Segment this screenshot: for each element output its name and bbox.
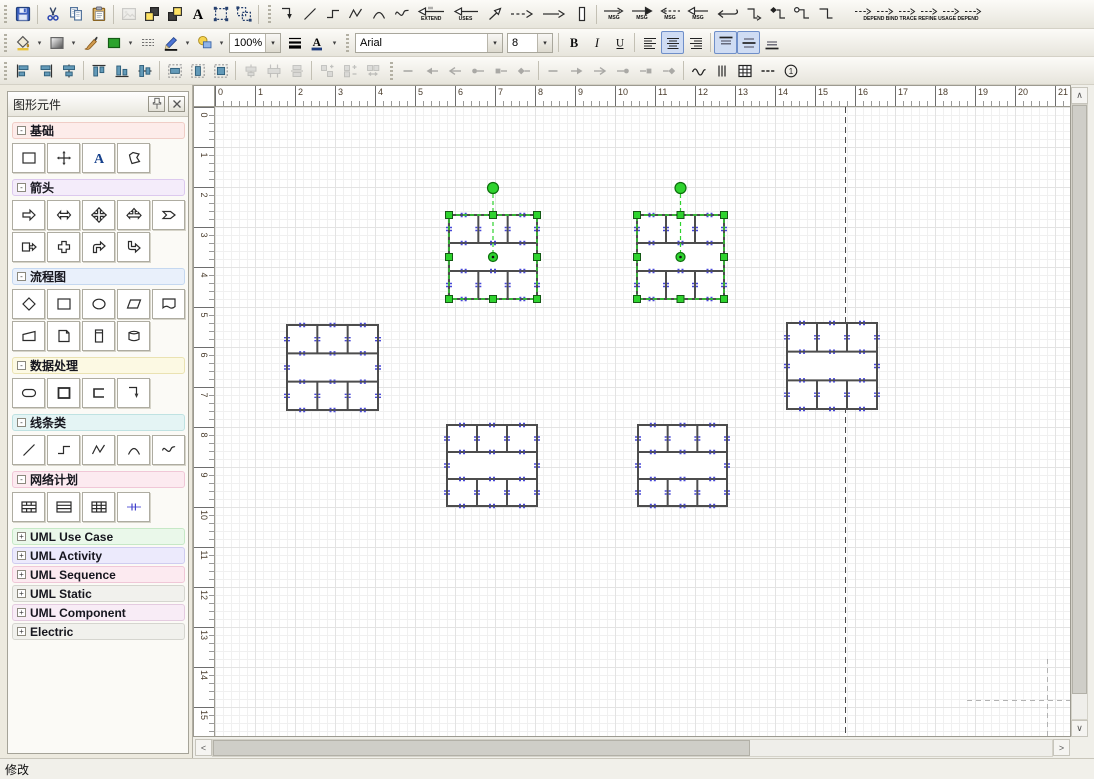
hatch-icon (140, 35, 156, 51)
palette-section-箭头[interactable]: -箭头 (12, 179, 185, 196)
drawing-canvas[interactable] (215, 107, 1071, 737)
palette-section-基础[interactable]: -基础 (12, 122, 185, 139)
chevron-down-icon[interactable]: ▾ (537, 34, 552, 52)
shape-item-move[interactable] (47, 143, 80, 173)
line-color-button[interactable] (159, 31, 182, 54)
toolbar-separator (710, 33, 711, 52)
h-ruler-number: 3 (338, 87, 343, 97)
h-ruler-number: 20 (1018, 87, 1028, 97)
s-arrow-tri-icon (126, 207, 142, 223)
s-chevron-icon (161, 207, 177, 223)
copy-button[interactable] (64, 3, 87, 26)
h-ruler-number: 7 (498, 87, 503, 97)
distribute-middle-button[interactable] (285, 59, 308, 82)
uml-relations-button[interactable]: DEPEND BIND TRACE REFINE USAGE DEPEND (838, 3, 1004, 26)
v-ruler-number: 6 (199, 348, 209, 362)
toolbar-grip-handle[interactable] (346, 34, 349, 52)
toolbar-grip-handle[interactable] (268, 5, 271, 23)
toolbar-grip-handle[interactable] (4, 5, 7, 23)
palette-section-uml-activity[interactable]: +UML Activity (12, 547, 185, 564)
s-wall-icon (21, 499, 37, 515)
h-ruler-number: 9 (578, 87, 583, 97)
same-h-icon (190, 63, 206, 79)
shape-item-rect[interactable] (47, 289, 80, 319)
close-palette-button[interactable] (168, 96, 185, 112)
cap-square-r-icon (638, 63, 654, 79)
fill-color-button[interactable] (11, 31, 34, 54)
cap-square-l-icon (493, 63, 509, 79)
dashed-arrow-icon (509, 6, 535, 22)
shape-fill-button[interactable] (102, 31, 125, 54)
z-diamond-icon (769, 6, 787, 22)
shape-item-hlines[interactable] (47, 492, 80, 522)
toolbar-separator (558, 33, 559, 52)
shape-item-arrow-tri[interactable] (117, 200, 150, 230)
palette-section-流程图[interactable]: -流程图 (12, 268, 185, 285)
palette-title: 图形元件 (13, 96, 145, 113)
line-wave-icon (691, 63, 707, 79)
shape-item-trap[interactable] (12, 321, 45, 351)
collapse-icon[interactable]: - (17, 418, 26, 427)
pen-icon (163, 35, 179, 51)
line-dash-icon (760, 63, 776, 79)
shape-item-arrow-lr[interactable] (47, 200, 80, 230)
cap-none-icon (546, 63, 562, 79)
shape-item-step[interactable] (47, 435, 80, 465)
line-end-arrow-button[interactable] (565, 59, 588, 82)
toolbar-group: A (0, 0, 264, 28)
gradient-fill-button[interactable] (45, 31, 68, 54)
save-button[interactable] (11, 3, 34, 26)
shape-item-ticks[interactable] (117, 492, 150, 522)
toolbar-grip-handle[interactable] (4, 62, 7, 80)
toolbar-grip-handle[interactable] (4, 34, 7, 52)
dashed-arrow-button[interactable] (506, 3, 538, 26)
align-left-button[interactable] (638, 31, 661, 54)
shape-item-plus-arrow[interactable] (47, 232, 80, 262)
italic-button[interactable]: I (585, 31, 608, 54)
shape-item-cyl[interactable] (117, 321, 150, 351)
font-color-icon: A (310, 35, 326, 51)
svg-text:1: 1 (788, 67, 793, 76)
lifeline-button[interactable] (570, 3, 593, 26)
toolbar-separator (235, 61, 236, 80)
font-color-dropdown[interactable]: ▾ (329, 31, 340, 54)
scroll-up-button[interactable]: ∧ (1071, 87, 1088, 104)
cut-button[interactable] (41, 3, 64, 26)
pin-button[interactable] (148, 96, 165, 112)
line-end-square-button[interactable] (634, 59, 657, 82)
cap-none-icon (401, 63, 417, 79)
horizontal-scroll-track[interactable] (212, 739, 1053, 757)
palette-section-线条类[interactable]: -线条类 (12, 414, 185, 431)
collapse-icon[interactable]: - (17, 183, 26, 192)
selection-handle[interactable] (534, 254, 541, 261)
align-objects-right-button[interactable] (34, 59, 57, 82)
uml-relations-icon (854, 6, 988, 17)
grid-icon-icon (737, 63, 753, 79)
same-size-button[interactable] (209, 59, 232, 82)
h-ruler-number: 18 (938, 87, 948, 97)
expand-icon[interactable]: + (17, 627, 26, 636)
line-begin-circle-button[interactable] (466, 59, 489, 82)
shadow-style-button[interactable] (193, 31, 216, 54)
format-brush-button[interactable] (79, 31, 102, 54)
space-vertical-add-button[interactable] (338, 59, 361, 82)
collapse-icon[interactable]: - (17, 475, 26, 484)
show-grid-button[interactable] (733, 59, 756, 82)
dist-v2-icon (342, 63, 358, 79)
shape-item-rect2[interactable] (47, 378, 80, 408)
z-connector-diamond-button[interactable] (766, 3, 790, 26)
chevron-down-icon[interactable]: ▾ (487, 34, 502, 52)
s-hlines-icon (56, 499, 72, 515)
s-wave-icon (161, 442, 177, 458)
distribute-horizontal-button[interactable] (262, 59, 285, 82)
font-size-combobox[interactable]: 8▾ (507, 33, 553, 53)
shape-item-corner-dn[interactable] (117, 232, 150, 262)
numbering-button[interactable]: 1 (779, 59, 802, 82)
lifeline-icon (576, 6, 588, 22)
gradient-fill-dropdown[interactable]: ▾ (68, 31, 79, 54)
shape-item-elbow[interactable] (117, 378, 150, 408)
arc-tool-button[interactable] (367, 3, 390, 26)
group-button[interactable] (209, 3, 232, 26)
align-objects-top-button[interactable] (87, 59, 110, 82)
scroll-down-button[interactable]: ∨ (1071, 720, 1088, 737)
line-style-parallel-button[interactable] (710, 59, 733, 82)
shape-fill-dropdown[interactable]: ▾ (125, 31, 136, 54)
section-items (11, 198, 186, 266)
shape-item-arrow-cross[interactable] (82, 200, 115, 230)
space-vertical-button[interactable] (315, 59, 338, 82)
uml-relation-labels: DEPEND BIND TRACE REFINE USAGE DEPEND (863, 17, 978, 21)
selected-diagram-shape[interactable] (634, 183, 728, 303)
selection-handle[interactable] (634, 296, 641, 303)
step-connector-button[interactable] (321, 3, 344, 26)
message-arrow-dashed-button[interactable]: MSG (656, 3, 684, 26)
shape-item-doc[interactable] (152, 289, 185, 319)
shape-item-corner-up[interactable] (82, 232, 115, 262)
s-rect-arrow-icon (21, 239, 37, 255)
h-ruler-number: 11 (658, 87, 667, 97)
line-begin-open-arrow-button[interactable] (443, 59, 466, 82)
selection-handle[interactable] (534, 296, 541, 303)
vertical-scroll-thumb[interactable] (1072, 105, 1087, 694)
palette-section-uml-static[interactable]: +UML Static (12, 585, 185, 602)
insert-image-button[interactable] (117, 3, 140, 26)
dist-v3-icon (365, 63, 381, 79)
line-end-open-arrow-button[interactable] (588, 59, 611, 82)
align-center-icon (665, 35, 681, 51)
valign-top-button[interactable] (714, 31, 737, 54)
align-right-button[interactable] (684, 31, 707, 54)
scroll-right-button[interactable]: > (1053, 739, 1070, 756)
horizontal-scrollbar[interactable]: < > (195, 739, 1070, 757)
expand-icon[interactable]: + (17, 589, 26, 598)
line-color-dropdown[interactable]: ▾ (182, 31, 193, 54)
expand-icon[interactable]: + (17, 532, 26, 541)
selection-handle[interactable] (721, 296, 728, 303)
valign-bottom-button[interactable] (760, 31, 783, 54)
palette-section-electric[interactable]: +Electric (12, 623, 185, 640)
s-corner-up-icon (91, 239, 107, 255)
align-center-button[interactable] (661, 31, 684, 54)
section-label: 箭头 (30, 179, 54, 196)
cap-diamond-l-icon (516, 63, 532, 79)
z-connector-arrow-button[interactable] (742, 3, 766, 26)
same-width-button[interactable] (163, 59, 186, 82)
copy-icon (68, 6, 84, 22)
collapse-icon[interactable]: - (17, 361, 26, 370)
fill-color-dropdown[interactable]: ▾ (34, 31, 45, 54)
shape-item-rect-arrow[interactable] (12, 232, 45, 262)
ungroup-button[interactable] (232, 3, 255, 26)
selection-handle[interactable] (677, 212, 684, 219)
v-ruler-number: 11 (199, 548, 209, 562)
v-ruler-number: 9 (199, 468, 209, 482)
dist-v-icon (319, 63, 335, 79)
message-arrow-open-label: MSG (608, 16, 619, 20)
line-begin-square-button[interactable] (489, 59, 512, 82)
cut-icon (45, 6, 61, 22)
gradient-rect-icon (49, 35, 65, 51)
uses-relation-label: USES (459, 17, 473, 21)
selected-diagram-shape[interactable] (446, 183, 541, 303)
valign-middle-button[interactable] (737, 31, 760, 54)
rotation-handle[interactable] (488, 183, 499, 194)
send-to-back-button[interactable] (163, 3, 186, 26)
shape-item-rect[interactable] (12, 143, 45, 173)
shape-item-stadium[interactable] (12, 378, 45, 408)
cap-circle-l-icon (470, 63, 486, 79)
v-ruler-number: 0 (199, 108, 209, 122)
align-objects-center-button[interactable] (57, 59, 80, 82)
collapse-icon[interactable]: - (17, 126, 26, 135)
h-ruler-number: 16 (858, 87, 868, 97)
distribute-center-button[interactable] (239, 59, 262, 82)
text-tool-button[interactable]: A (186, 3, 209, 26)
section-items (11, 376, 186, 412)
s-card-icon (91, 328, 107, 344)
selection-handle[interactable] (446, 296, 453, 303)
s-rect-icon (56, 296, 72, 312)
shape-item-zigzag[interactable] (82, 435, 115, 465)
s-para-icon (126, 296, 142, 312)
hatch-style-button[interactable] (136, 31, 159, 54)
chevron-down-icon[interactable]: ▾ (265, 34, 280, 52)
h-ruler-number: 8 (538, 87, 543, 97)
palette-section-uml-use-case[interactable]: +UML Use Case (12, 528, 185, 545)
shape-item-arc[interactable] (117, 435, 150, 465)
shape-item-chevron[interactable] (152, 200, 185, 230)
solid-arrow-button[interactable] (538, 3, 570, 26)
scroll-left-button[interactable]: < (195, 739, 212, 756)
space-vertical-remove-button[interactable] (361, 59, 384, 82)
align-right-icon (688, 35, 704, 51)
zigzag-tool-button[interactable] (344, 3, 367, 26)
h-ruler-number: 0 (218, 87, 223, 97)
expand-icon[interactable]: + (17, 608, 26, 617)
line-width-button[interactable] (283, 31, 306, 54)
s-rect-icon (21, 150, 37, 166)
svg-text:A: A (192, 7, 203, 22)
toolbar-group: Arial▾8▾BIU (342, 29, 785, 56)
shape-item-ellipse[interactable] (82, 289, 115, 319)
expand-icon[interactable]: + (17, 551, 26, 560)
s-arrow-lr-icon (56, 207, 72, 223)
shape-item-bracket[interactable] (82, 378, 115, 408)
palette-section-uml-sequence[interactable]: +UML Sequence (12, 566, 185, 583)
selection-handle[interactable] (490, 212, 497, 219)
line-begin-diamond-button[interactable] (512, 59, 535, 82)
diagram-shape[interactable] (444, 424, 540, 508)
diagonal-arrow-button[interactable] (483, 3, 506, 26)
s-text-icon: A (91, 150, 107, 166)
underline-button[interactable]: U (608, 31, 631, 54)
zigzag-tool-icon (348, 6, 364, 22)
toolbar-separator (37, 5, 38, 24)
selection-handle[interactable] (721, 254, 728, 261)
font-family-combobox[interactable]: Arial▾ (355, 33, 503, 53)
toolbar-grip-handle[interactable] (390, 62, 393, 80)
diagram-shape[interactable] (284, 324, 381, 412)
oac-icon (61, 63, 77, 79)
zoom-level-value: 100% (230, 37, 265, 49)
shape-item-text[interactable]: A (82, 143, 115, 173)
bring-to-front-button[interactable] (140, 3, 163, 26)
line-style-dash-button[interactable] (756, 59, 779, 82)
line-end-circle-button[interactable] (611, 59, 634, 82)
h-ruler-number: 10 (618, 87, 628, 97)
v-ruler-number: 12 (199, 588, 209, 602)
expand-icon[interactable]: + (17, 570, 26, 579)
uses-relation-button[interactable]: USES (449, 3, 483, 26)
section-label: UML Sequence (30, 568, 116, 582)
pin-icon (150, 97, 164, 111)
section-label: UML Static (30, 587, 92, 601)
vertical-ruler: 0123456789101112131415 (193, 107, 215, 737)
rotation-handle[interactable] (675, 183, 686, 194)
line-parallel-icon (714, 63, 730, 79)
shape-item-page[interactable] (47, 321, 80, 351)
circled-one-icon: 1 (783, 63, 799, 79)
v-ruler-number: 14 (199, 668, 209, 682)
horizontal-scroll-thumb[interactable] (213, 740, 750, 756)
z-circle-icon (793, 6, 811, 22)
paste-button[interactable] (87, 3, 110, 26)
shape-item-wave[interactable] (152, 435, 185, 465)
message-arrow-open-button[interactable]: MSG (600, 3, 628, 26)
shape-item-line[interactable] (12, 435, 45, 465)
palette-section-uml-component[interactable]: +UML Component (12, 604, 185, 621)
cap-diamond-r-icon (661, 63, 677, 79)
bold-button[interactable]: B (562, 31, 585, 54)
diagram-shape[interactable] (635, 424, 730, 508)
s-trap-icon (21, 328, 37, 344)
line-tool-icon (302, 6, 318, 22)
collapse-icon[interactable]: - (17, 272, 26, 281)
palette-section-网络计划[interactable]: -网络计划 (12, 471, 185, 488)
align-objects-bottom-button[interactable] (110, 59, 133, 82)
svg-text:I: I (593, 36, 599, 50)
s-page-icon (56, 328, 72, 344)
palette-title-bar: 图形元件 (8, 92, 188, 117)
wave-tool-button[interactable] (390, 3, 413, 26)
vertical-scrollbar[interactable]: ∧ ∨ (1071, 87, 1088, 737)
selection-handle[interactable] (534, 212, 541, 219)
selection-handle[interactable] (490, 296, 497, 303)
shape-item-diamond[interactable] (12, 289, 45, 319)
cap-arrow-l-icon (424, 63, 440, 79)
shape-item-card[interactable] (82, 321, 115, 351)
align-left-icon (642, 35, 658, 51)
line-tool-button[interactable] (298, 3, 321, 26)
v-ruler-number: 15 (199, 708, 209, 722)
z-connector-circle-button[interactable] (790, 3, 814, 26)
shape-item-para[interactable] (117, 289, 150, 319)
oal-icon (15, 63, 31, 79)
palette-section-数据处理[interactable]: -数据处理 (12, 357, 185, 374)
h-ruler-number: 14 (778, 87, 788, 97)
section-label: UML Activity (30, 549, 102, 563)
selection-handle[interactable] (677, 296, 684, 303)
line-begin-none-button[interactable] (397, 59, 420, 82)
line-begin-arrow-button[interactable] (420, 59, 443, 82)
selection-handle[interactable] (634, 254, 641, 261)
message-arrow-left-button[interactable]: MSG (684, 3, 712, 26)
valign-middle-icon (741, 35, 757, 51)
extend-relation-button[interactable]: EXTEND (413, 3, 449, 26)
h-ruler-number: 6 (458, 87, 463, 97)
toolbar-group: EXTENDUSESMSGMSGMSGMSGDEPEND BIND TRACE … (264, 0, 1006, 28)
shape-item-polygon[interactable] (117, 143, 150, 173)
s-step-icon (56, 442, 72, 458)
bubble-icon (197, 35, 213, 51)
align-objects-left-button[interactable] (11, 59, 34, 82)
selection-handle[interactable] (446, 254, 453, 261)
line-style-wave-button[interactable] (687, 59, 710, 82)
selection-handle[interactable] (446, 212, 453, 219)
group-icon (213, 6, 229, 22)
line-end-diamond-button[interactable] (657, 59, 680, 82)
shape-item-wall[interactable] (12, 492, 45, 522)
z-connector-button[interactable] (814, 3, 838, 26)
align-objects-middle-button[interactable] (133, 59, 156, 82)
selection-handle[interactable] (721, 212, 728, 219)
elbow-arrow-icon (279, 6, 295, 22)
status-bar: 修改 (0, 758, 1094, 779)
selection-handle[interactable] (634, 212, 641, 219)
diagram-shape[interactable] (784, 322, 880, 411)
shape-item-grid[interactable] (82, 492, 115, 522)
line-end-none-button[interactable] (542, 59, 565, 82)
palette-body: -基础A-箭头-流程图-数据处理-线条类-网络计划+UML Use Case+U… (8, 117, 188, 753)
elbow-connector-button[interactable] (275, 3, 298, 26)
vertical-scroll-track[interactable] (1071, 104, 1088, 720)
return-arrow-button[interactable] (712, 3, 742, 26)
s-line-icon (21, 442, 37, 458)
message-arrow-filled-button[interactable]: MSG (628, 3, 656, 26)
font-color-button[interactable]: A (306, 31, 329, 54)
same-height-button[interactable] (186, 59, 209, 82)
ruler-corner (193, 85, 215, 107)
shape-item-arrow-r[interactable] (12, 200, 45, 230)
shadow-style-dropdown[interactable]: ▾ (216, 31, 227, 54)
zoom-level-combobox[interactable]: 100%▾ (229, 33, 281, 53)
bold-icon: B (566, 35, 582, 51)
svg-text:A: A (312, 37, 321, 49)
